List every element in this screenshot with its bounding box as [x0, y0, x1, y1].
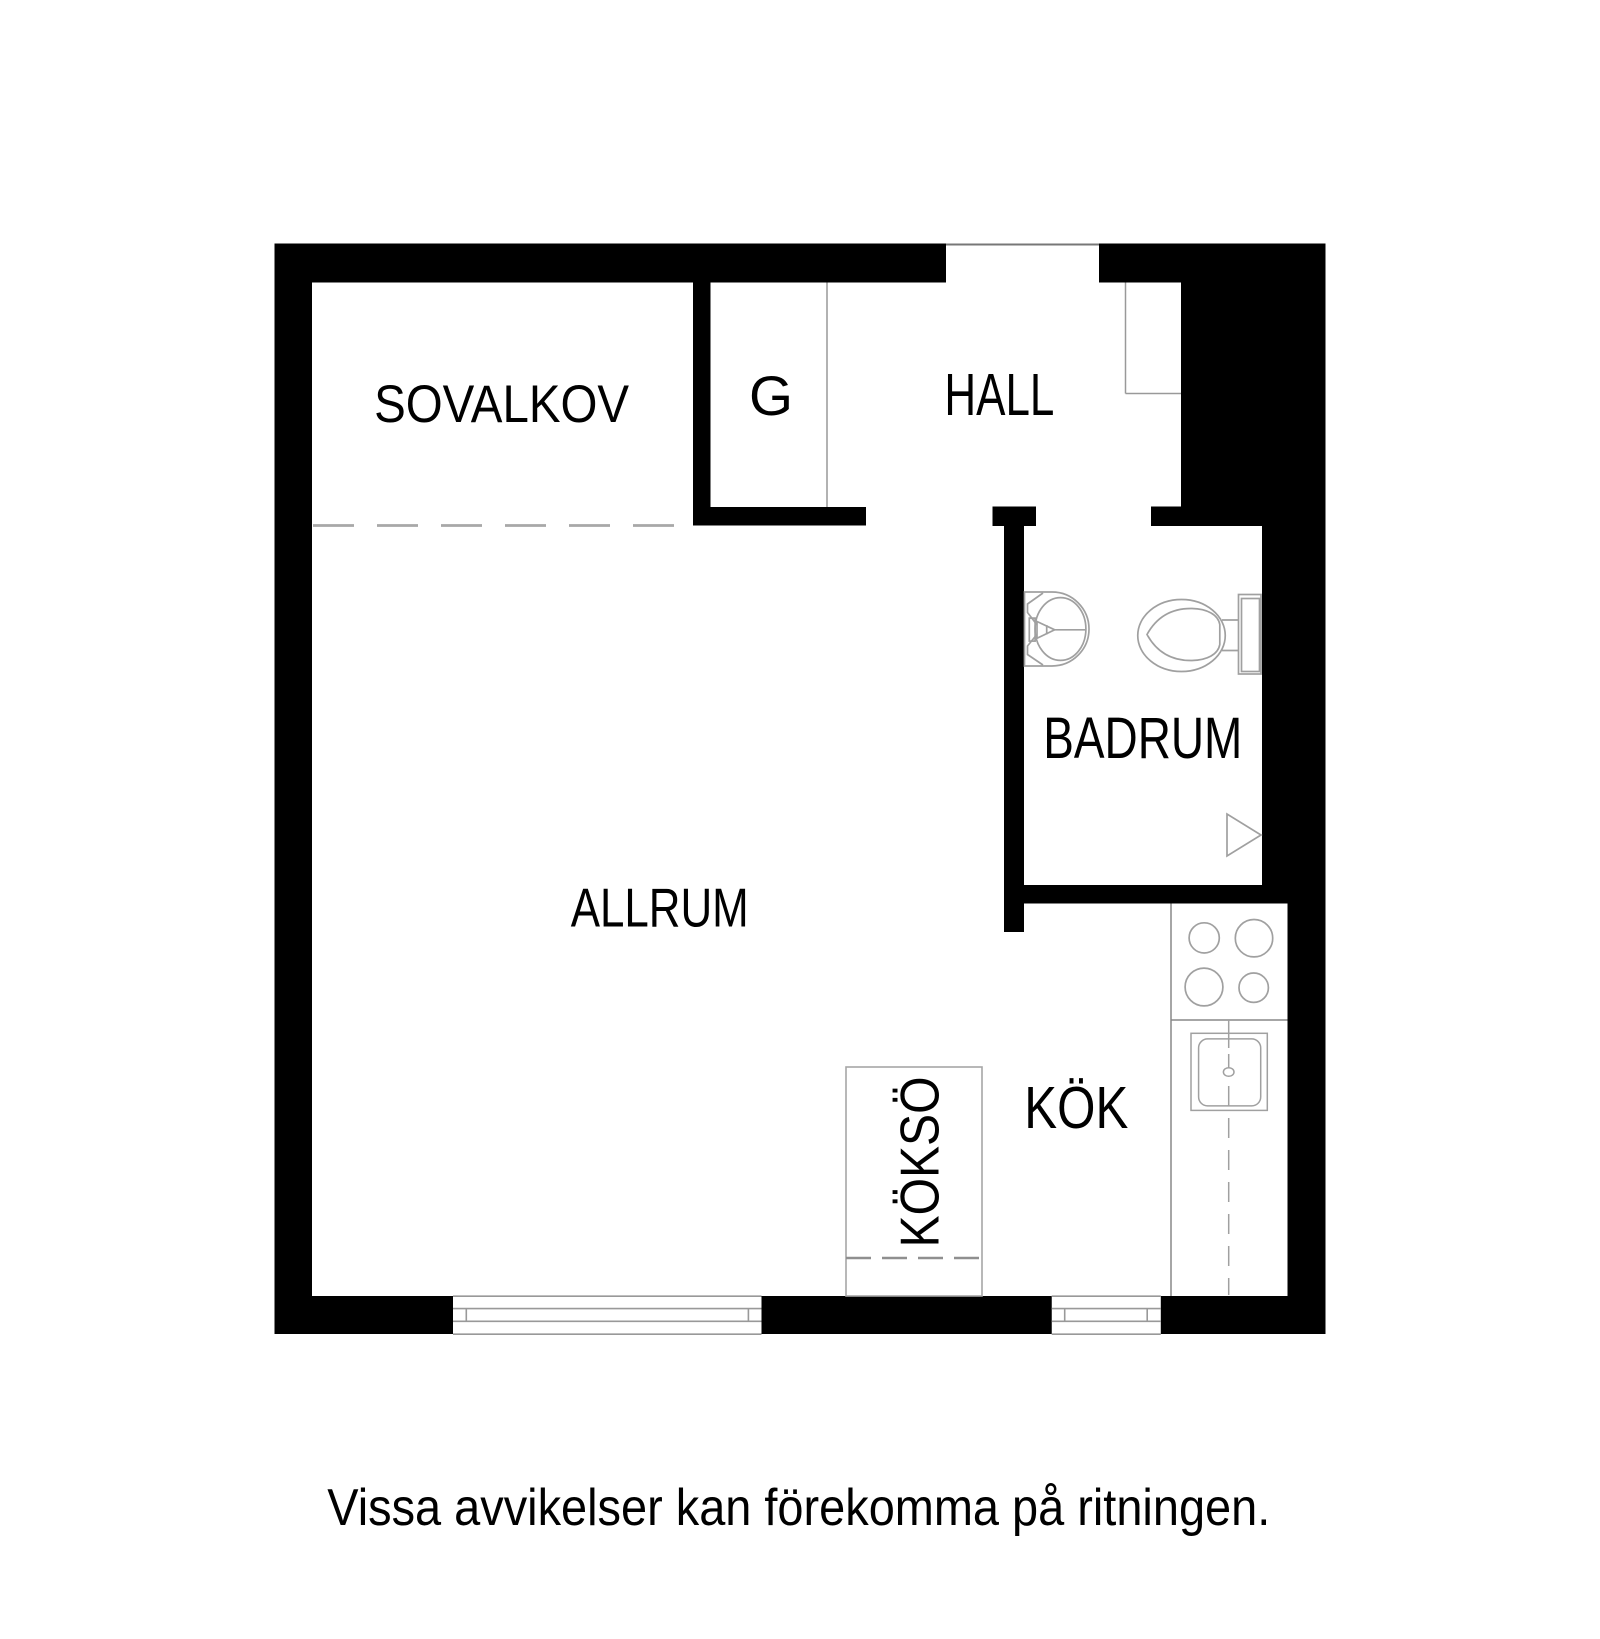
svg-text:BADRUM: BADRUM: [1043, 706, 1242, 771]
svg-text:KÖKSÖ: KÖKSÖ: [890, 1077, 951, 1248]
svg-text:SOVALKOV: SOVALKOV: [374, 375, 629, 434]
svg-text:G: G: [749, 364, 793, 427]
svg-text:ALLRUM: ALLRUM: [571, 878, 749, 939]
svg-text:Vissa avvikelser kan förekomma: Vissa avvikelser kan förekomma på ritnin…: [327, 1478, 1270, 1536]
svg-text:HALL: HALL: [944, 362, 1054, 428]
svg-text:KÖK: KÖK: [1024, 1075, 1128, 1141]
